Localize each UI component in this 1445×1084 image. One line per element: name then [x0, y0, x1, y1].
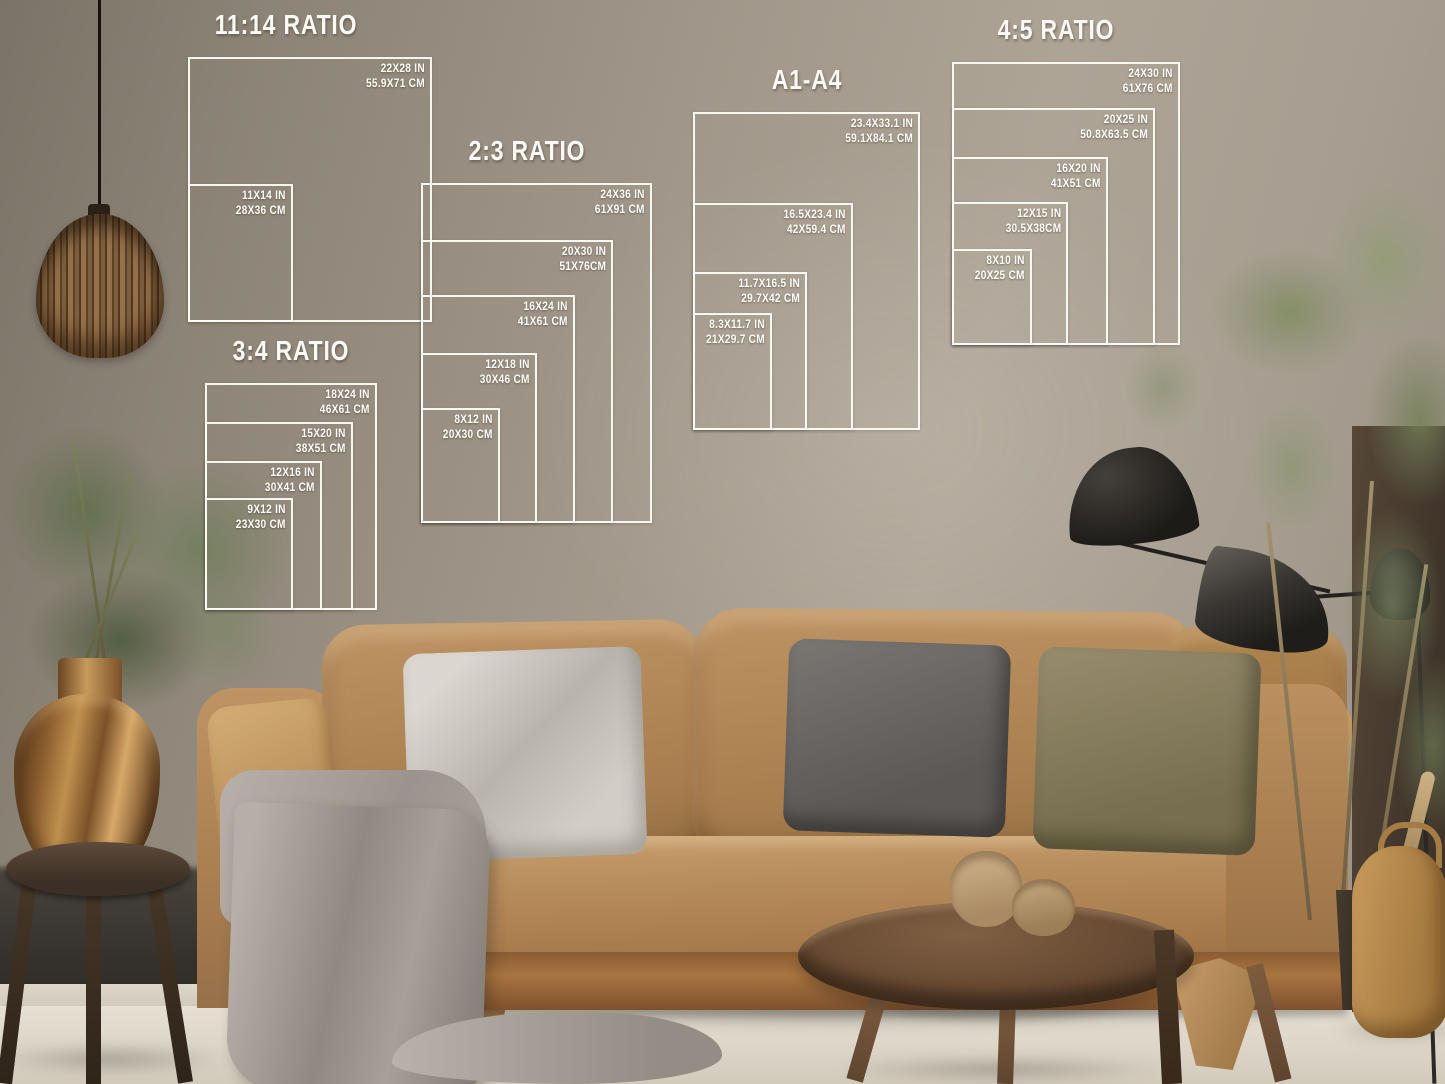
size-label: 16X24 IN 41X61 CM: [518, 300, 568, 330]
size-label: 16X20 IN 41X51 CM: [1051, 162, 1101, 192]
chart-title: 3:4 RATIO: [233, 335, 350, 367]
size-label: 20X25 IN 50.8X63.5 CM: [1080, 113, 1148, 143]
size-label-in: 11X14 IN: [236, 189, 286, 204]
size-label: 23.4X33.1 IN 59.1X84.1 CM: [845, 117, 913, 147]
size-label-cm: 30.5X38CM: [1005, 222, 1061, 237]
size-chart-2-3-ratio: 2:3 RATIO 24X36 IN 61X91 CM 20X30 IN 51X…: [421, 183, 652, 523]
living-room-mockup: 11:14 RATIO 22X28 IN 55.9X71 CM 11X14 IN…: [0, 0, 1445, 1084]
size-label: 11.7X16.5 IN 29.7X42 CM: [738, 277, 800, 307]
frame-8x10: 8X10 IN 20X25 CM: [952, 249, 1032, 345]
size-label: 12X16 IN 30X41 CM: [265, 466, 315, 496]
size-label-cm: 23X30 CM: [236, 518, 286, 533]
size-label-cm: 42X59.4 CM: [784, 223, 846, 238]
size-label-cm: 50.8X63.5 CM: [1080, 128, 1148, 143]
size-label-in: 11.7X16.5 IN: [738, 277, 800, 292]
size-label: 12X18 IN 30X46 CM: [480, 358, 530, 388]
frame-a4: 8.3X11.7 IN 21X29.7 CM: [693, 313, 772, 430]
olive-pillow: [1033, 646, 1262, 856]
size-label-in: 16.5X23.4 IN: [784, 208, 846, 223]
size-label-cm: 61X76 CM: [1123, 82, 1173, 97]
size-label-in: 18X24 IN: [320, 388, 370, 403]
size-label-in: 9X12 IN: [236, 503, 286, 518]
size-label-in: 20X25 IN: [1080, 113, 1148, 128]
size-label-cm: 29.7X42 CM: [738, 292, 800, 307]
size-label: 11X14 IN 28X36 CM: [236, 189, 286, 219]
size-label: 22X28 IN 55.9X71 CM: [366, 62, 425, 92]
size-label-in: 15X20 IN: [296, 427, 346, 442]
charcoal-pillow: [783, 638, 1012, 838]
size-label-cm: 30X46 CM: [480, 373, 530, 388]
stool-leg: [86, 886, 101, 1084]
frame-8x12: 8X12 IN 20X30 CM: [421, 408, 500, 523]
size-label-in: 8X12 IN: [443, 413, 493, 428]
size-label-in: 12X18 IN: [480, 358, 530, 373]
size-chart-4-5-ratio: 4:5 RATIO 24X30 IN 61X76 CM 20X25 IN 50.…: [952, 62, 1180, 345]
size-label: 8.3X11.7 IN 21X29.7 CM: [706, 318, 765, 348]
size-label: 8X12 IN 20X30 CM: [443, 413, 493, 443]
size-label-in: 24X30 IN: [1123, 67, 1173, 82]
size-label-in: 20X30 IN: [559, 245, 606, 260]
size-label-cm: 20X25 CM: [975, 269, 1025, 284]
size-label-cm: 30X41 CM: [265, 481, 315, 496]
size-label-cm: 20X30 CM: [443, 428, 493, 443]
stool-shadow: [0, 1044, 230, 1074]
size-label: 24X30 IN 61X76 CM: [1123, 67, 1173, 97]
size-label-cm: 61X91 CM: [595, 203, 645, 218]
size-label-cm: 41X51 CM: [1051, 177, 1101, 192]
size-label-in: 16X20 IN: [1051, 162, 1101, 177]
size-label-cm: 51X76CM: [559, 260, 606, 275]
chart-title: 4:5 RATIO: [998, 14, 1115, 46]
pendant-cord: [98, 0, 101, 218]
chart-title: 11:14 RATIO: [215, 9, 358, 41]
size-label-in: 22X28 IN: [366, 62, 425, 77]
size-label-in: 16X24 IN: [518, 300, 568, 315]
size-label-cm: 41X61 CM: [518, 315, 568, 330]
size-label-cm: 21X29.7 CM: [706, 333, 765, 348]
size-label: 8X10 IN 20X25 CM: [975, 254, 1025, 284]
size-label-cm: 38X51 CM: [296, 442, 346, 457]
frame-9x12: 9X12 IN 23X30 CM: [205, 498, 293, 610]
woven-basket: [1352, 846, 1445, 1038]
size-label: 24X36 IN 61X91 CM: [595, 188, 645, 218]
size-label-in: 24X36 IN: [595, 188, 645, 203]
size-label-in: 8.3X11.7 IN: [706, 318, 765, 333]
clay-pot-small: [1012, 879, 1075, 936]
size-label: 18X24 IN 46X61 CM: [320, 388, 370, 418]
size-label-cm: 59.1X84.1 CM: [845, 132, 913, 147]
chart-title: A1-A4: [771, 64, 841, 96]
size-label-in: 8X10 IN: [975, 254, 1025, 269]
coffee-table-leg: [997, 1000, 1016, 1084]
size-label-cm: 46X61 CM: [320, 403, 370, 418]
size-label-in: 12X16 IN: [265, 466, 315, 481]
frame-11x14: 11X14 IN 28X36 CM: [188, 184, 293, 322]
size-chart-3-4-ratio: 3:4 RATIO 18X24 IN 46X61 CM 15X20 IN 38X…: [205, 383, 377, 610]
rattan-pendant-lamp: [36, 214, 164, 358]
size-label: 15X20 IN 38X51 CM: [296, 427, 346, 457]
size-label: 12X15 IN 30.5X38CM: [1005, 207, 1061, 237]
size-chart-11-14-ratio: 11:14 RATIO 22X28 IN 55.9X71 CM 11X14 IN…: [188, 57, 432, 322]
size-label: 9X12 IN 23X30 CM: [236, 503, 286, 533]
clay-pot-large: [950, 851, 1022, 927]
size-label: 16.5X23.4 IN 42X59.4 CM: [784, 208, 846, 238]
size-label-cm: 55.9X71 CM: [366, 77, 425, 92]
size-label-in: 23.4X33.1 IN: [845, 117, 913, 132]
stool-seat: [6, 842, 190, 896]
chart-title: 2:3 RATIO: [468, 135, 585, 167]
size-label-in: 12X15 IN: [1005, 207, 1061, 222]
size-label-cm: 28X36 CM: [236, 204, 286, 219]
size-chart-a1-a4: A1-A4 23.4X33.1 IN 59.1X84.1 CM 16.5X23.…: [693, 112, 920, 430]
size-label: 20X30 IN 51X76CM: [559, 245, 606, 275]
